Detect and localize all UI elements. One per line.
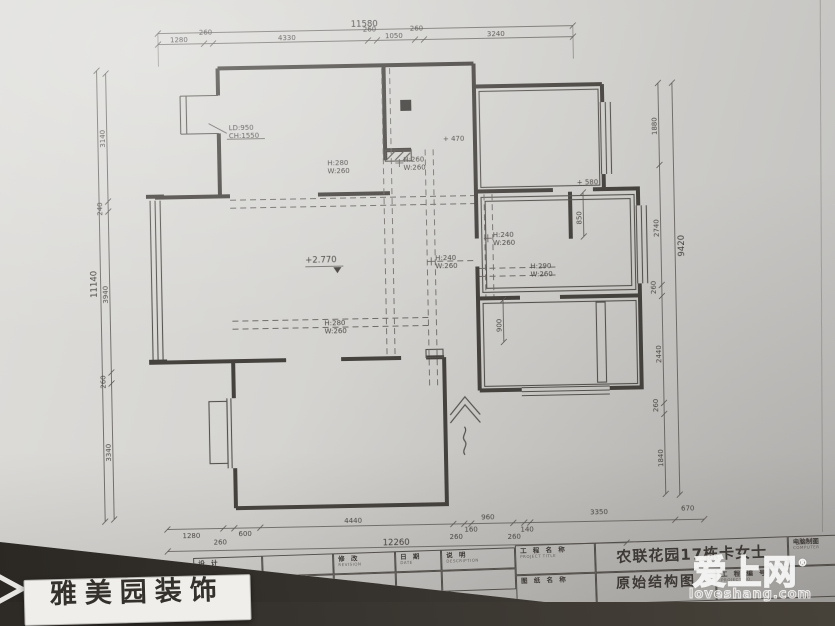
beam-label: W:260 (530, 270, 552, 278)
date-cell: 日 期 DATE (395, 550, 442, 573)
description-label-en: DESCRIPTION (446, 557, 514, 563)
dim-label: 260 (214, 538, 228, 546)
drawing-name-label: 图 纸 名 称 (521, 576, 595, 585)
flue-block (400, 100, 411, 111)
revision-value-cell (334, 572, 397, 595)
entry-arrow (450, 396, 481, 455)
dim-label: 260 (507, 533, 521, 541)
dim-label: 9420 (677, 235, 687, 257)
dim-label: 1050 (385, 32, 403, 40)
dim-label: 260 (199, 29, 213, 37)
dim-label: 1880 (651, 117, 659, 135)
spot-level-580: + 580 (577, 178, 599, 186)
revision-label-en: REVISION (338, 561, 394, 567)
brand-sign: 雅美园装饰 (23, 574, 251, 626)
dim-label: 3240 (487, 30, 505, 38)
dim-label: 11140 (89, 271, 100, 298)
floorplan-svg: 11580 1280 260 4330 260 1050 260 3240 11… (0, 0, 835, 610)
beam-label: W:260 (403, 163, 425, 171)
description-cell: 说 明 DESCRIPTION (441, 547, 516, 570)
lintel-label: CH:1550 (229, 132, 259, 141)
dim-label: 1280 (170, 36, 188, 44)
windows-and-thin-lines (146, 0, 830, 545)
dim-label: 260 (650, 281, 658, 295)
spot-level-470: + 470 (443, 135, 465, 143)
beam-label: W:260 (325, 327, 347, 335)
design-label-en: DESIGN (198, 566, 261, 572)
dim-label: 260 (449, 533, 463, 541)
beam-dashed-lines (228, 65, 562, 393)
walls (144, 60, 646, 509)
design-value-cell (262, 553, 334, 576)
dim-label: 3350 (590, 508, 608, 516)
dim-label: 670 (681, 504, 695, 512)
dim-label: 260 (410, 25, 424, 33)
dim-label: 2440 (655, 345, 663, 363)
project-title-cell: 工 程 名 称 PROJECT TITLE (515, 543, 596, 576)
drawer-value-cell (263, 574, 335, 597)
dim-label: 3940 (102, 286, 110, 304)
dim-label: 900 (495, 319, 503, 333)
photo-of-floorplan: { "photo": { "sign_text": "雅美园装饰", "wate… (0, 0, 835, 602)
project-no-cell: 工 程 编 号 PROJECT NO. (716, 564, 835, 601)
revision-cell: 修 改 REVISION (333, 551, 396, 574)
beam-label: W:260 (493, 239, 515, 247)
dim-label: 1840 (657, 449, 665, 467)
beam-label: W:260 (435, 262, 457, 270)
dim-label: 1280 (182, 532, 200, 540)
level-marker-triangle (333, 267, 341, 273)
dim-label: 4440 (344, 517, 362, 525)
dim-label: 140 (520, 525, 534, 533)
dim-label: 260 (99, 375, 107, 389)
dim-label: 2740 (652, 219, 660, 237)
annotation-labels: +2.770 + 470 + 580 LD:950 CH:1550 H:280 … (229, 117, 601, 337)
level-label: +2.770 (305, 255, 337, 266)
dim-label: 4330 (278, 34, 296, 42)
break-squiggle (463, 427, 466, 455)
drawing-name-value: 原始结构图 (596, 569, 717, 605)
paper-sheet: 11580 1280 260 4330 260 1050 260 3240 11… (0, 0, 835, 602)
date-value-cell (396, 571, 443, 594)
dim-label: 260 (652, 399, 660, 413)
floorplan-drawing: 11580 1280 260 4330 260 1050 260 3240 11… (0, 0, 835, 610)
dim-label: 260 (363, 25, 377, 33)
dim-label: 3140 (99, 130, 107, 148)
computer-drawing-cell: 电脑制图 COMPUTER (788, 534, 835, 566)
dim-label: 3340 (105, 444, 113, 462)
drawing-name-cell: 图 纸 名 称 (516, 573, 597, 608)
brand-sign-text: 雅美园装饰 (49, 576, 225, 610)
dim-label: 850 (575, 211, 583, 225)
dim-label: 12260 (383, 538, 410, 549)
computer-drawing-label-en: COMPUTER (793, 544, 835, 550)
dim-label: 240 (96, 202, 104, 216)
dim-label: 160 (464, 526, 478, 534)
dim-label: 960 (481, 513, 495, 521)
description-value-cell (442, 568, 517, 591)
beam-label: W:260 (327, 167, 349, 175)
dim-label: 600 (238, 530, 252, 538)
